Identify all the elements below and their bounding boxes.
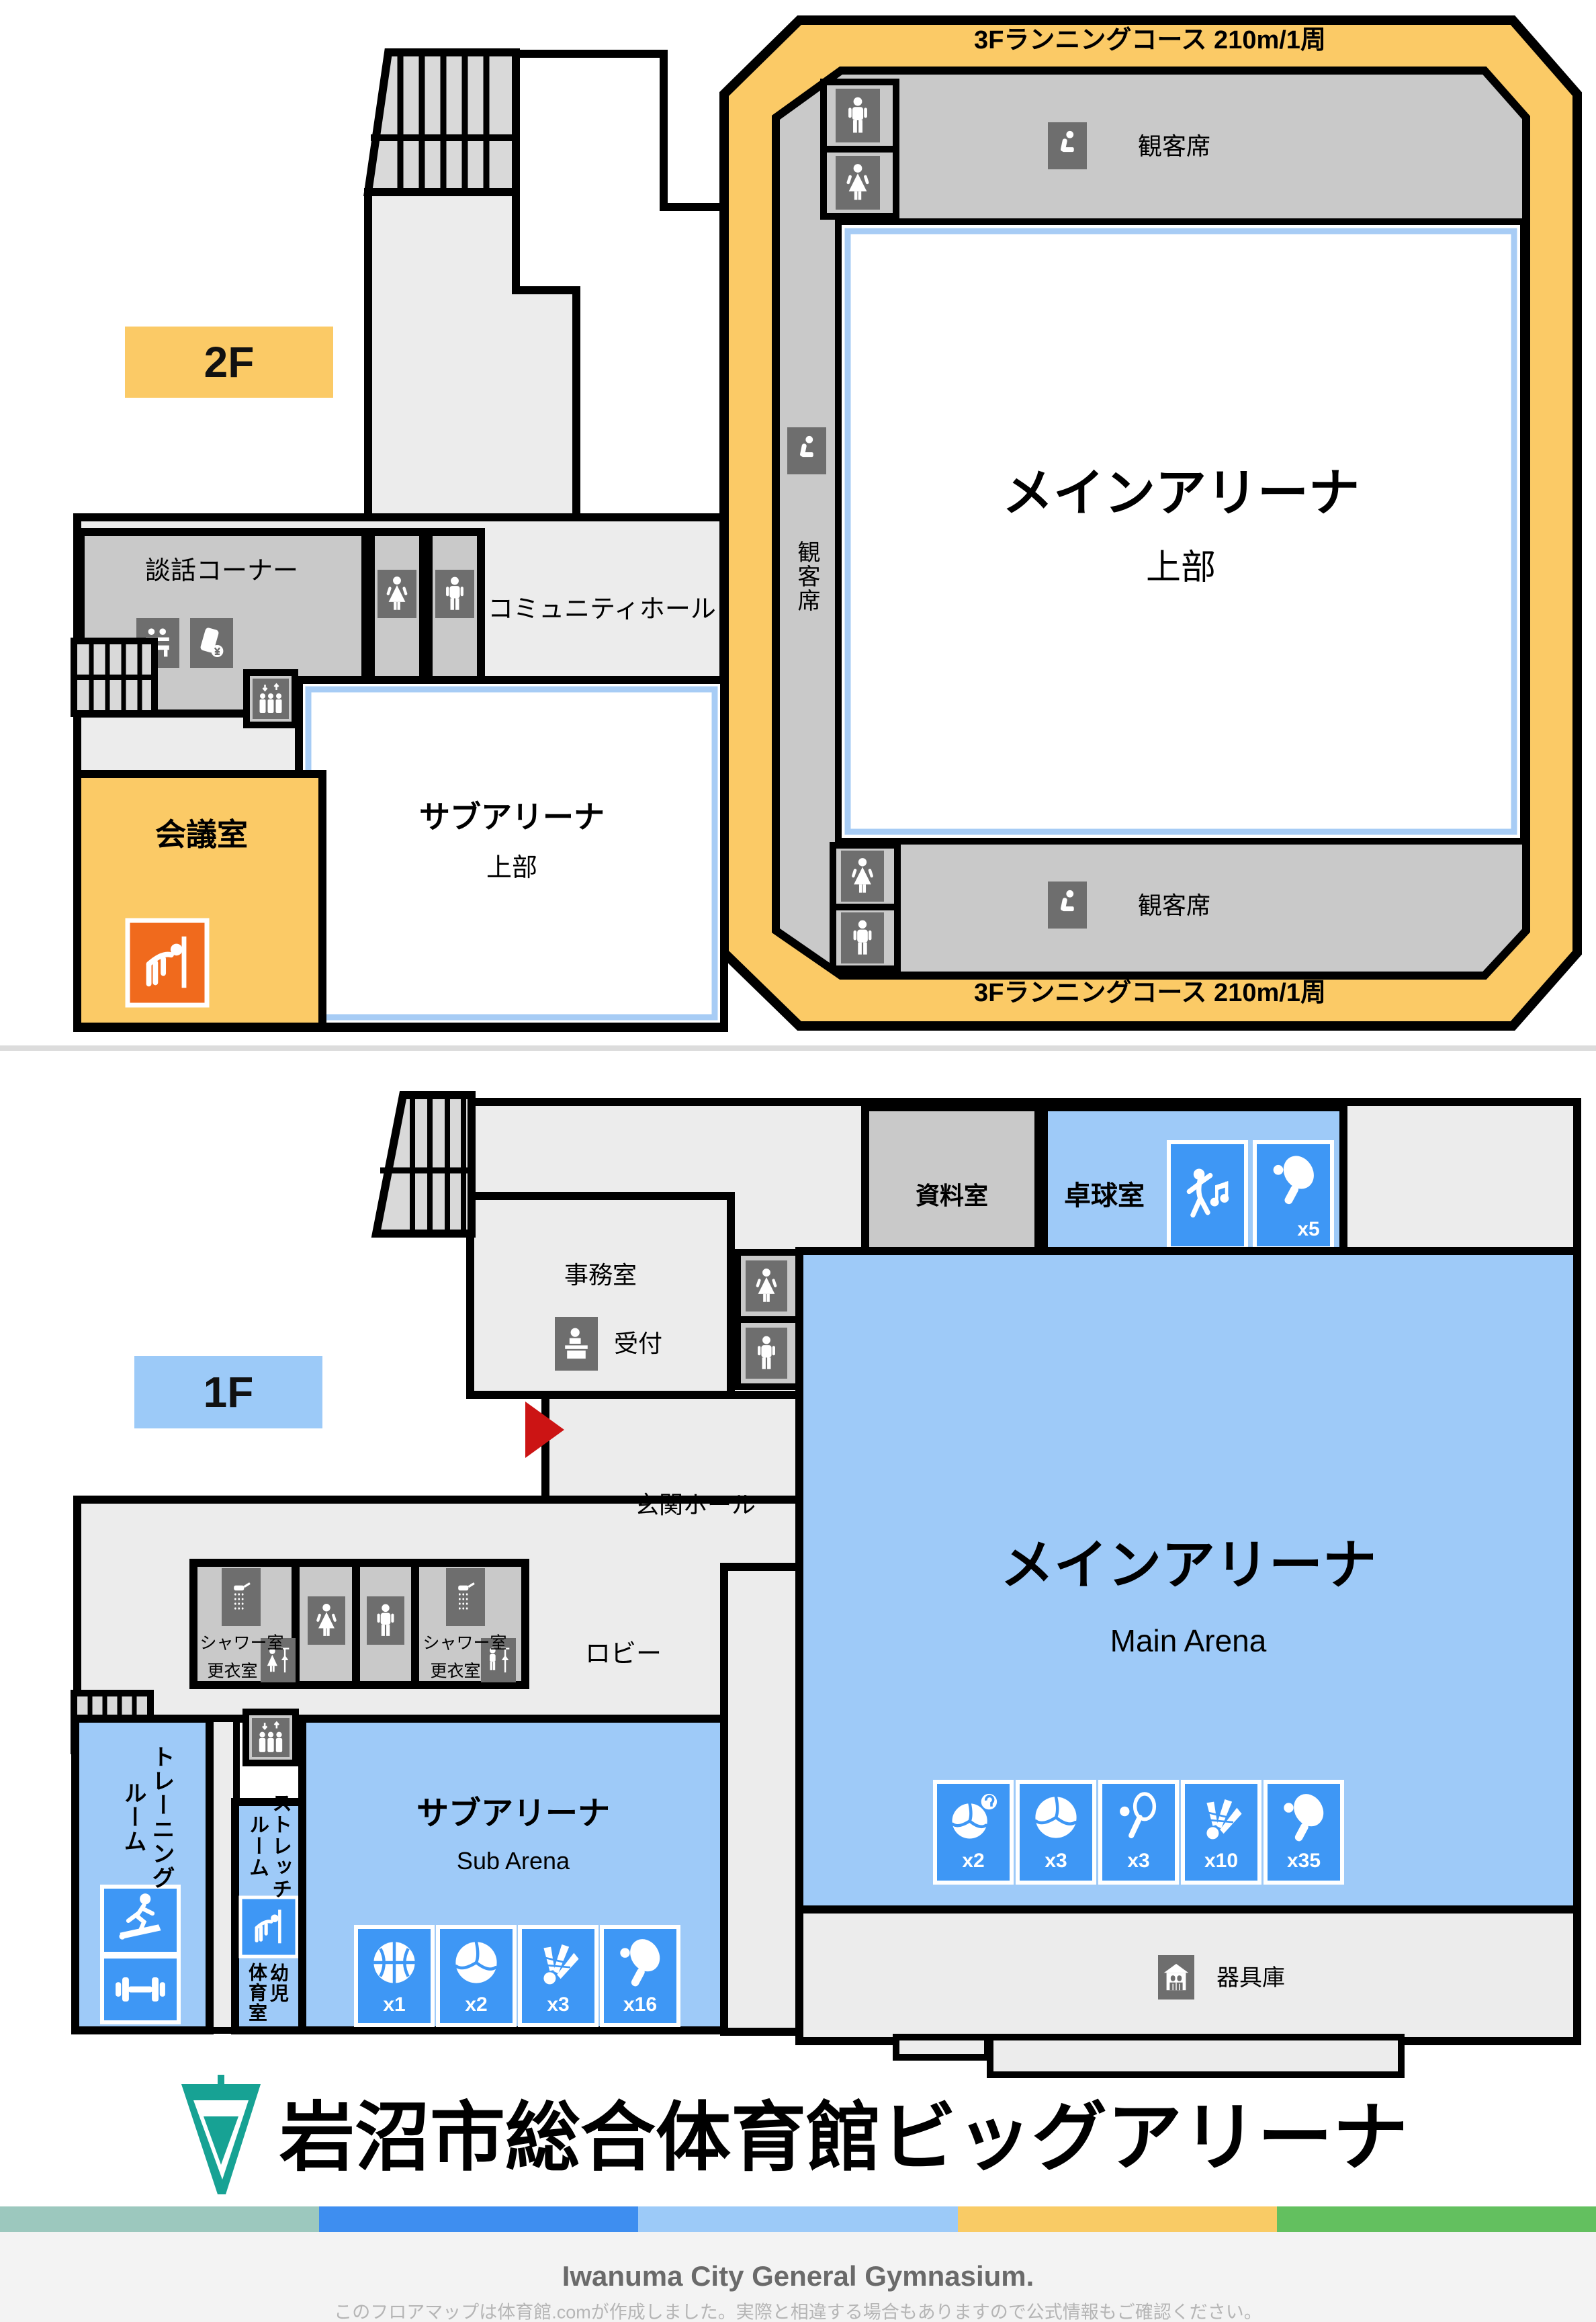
- elevator-icon: [247, 673, 295, 725]
- f2-main-arena-title: メインアリーナ: [1002, 468, 1360, 519]
- table-tennis-icon: [1255, 1142, 1332, 1248]
- sub-count-basketball: x1: [383, 1995, 405, 2015]
- training-room-label-2: ルーム: [122, 1781, 144, 1854]
- f2-staircase: [368, 52, 516, 192]
- shower-room-label-right: シャワー室: [423, 1635, 506, 1652]
- floor-map-page: 2F 1F 3Fランニングコース 210m/1周 3Fランニングコース 210m…: [0, 0, 1596, 2322]
- stripe-lightblue: [638, 2206, 957, 2232]
- stretch-room-label-2: ルーム: [247, 1814, 267, 1879]
- womens-toilet-icon: [308, 1596, 345, 1645]
- floor1-badge: 1F: [134, 1356, 322, 1428]
- mens-toilet-icon: [836, 89, 880, 142]
- f2-outline-step: [516, 54, 724, 207]
- floor2-badge: 2F: [125, 327, 333, 398]
- main-count-tennis: x3: [1127, 1851, 1149, 1871]
- f1-staircase: [376, 1095, 472, 1234]
- spectator-label-bottom: 観客席: [1138, 894, 1210, 918]
- womens-toilet-icon: [836, 156, 880, 210]
- spectator-label-left: 観客席: [795, 540, 818, 613]
- shower-icon: [222, 1568, 261, 1626]
- reception-icon: [555, 1317, 598, 1371]
- entrance-hall-label: 玄関ホール: [635, 1493, 756, 1517]
- f2-sub-arena-subtitle: 上部: [486, 855, 537, 881]
- footer-note: このフロアマップは体育館.comが作成しました。実際と相違する場合もありますので…: [334, 2304, 1262, 2322]
- facility-logo: [181, 2075, 261, 2194]
- tt-room-count: x5: [1297, 1219, 1319, 1240]
- changing-room-label-right: 更衣室: [430, 1664, 480, 1680]
- archive-room-label: 資料室: [916, 1184, 988, 1208]
- mens-toilet-icon: [435, 570, 474, 618]
- stretch-icon: [128, 920, 207, 1005]
- equipment-storage-label: 器具庫: [1216, 1967, 1285, 1989]
- f1-room-office: [470, 1196, 731, 1395]
- main-count-table-tennis: x35: [1287, 1851, 1321, 1871]
- shower-room-label-left: シャワー室: [199, 1635, 283, 1652]
- f2-sub-arena: [299, 680, 724, 1027]
- stripe-teal: [0, 2206, 319, 2232]
- brand-stripe: [0, 2206, 1596, 2232]
- sub-count-badminton: x3: [547, 1995, 569, 2015]
- spectator-label-top: 観客席: [1138, 134, 1210, 159]
- f1-main-arena-title: メインアリーナ: [1000, 1539, 1376, 1592]
- f1-corridor: [724, 1567, 799, 2032]
- dumbbell-icon: [102, 1956, 179, 2022]
- sub-count-volleyball: x2: [465, 1995, 487, 2015]
- infant-gym-label-2: 体育室: [247, 1963, 266, 2023]
- facility-title-en: Iwanuma City General Gymnasium.: [562, 2262, 1034, 2290]
- vending-machine-icon: [190, 618, 233, 668]
- womens-toilet-icon: [378, 570, 416, 618]
- sub-count-table-tennis: x16: [623, 1995, 657, 2015]
- f2-sub-arena-title: サブアリーナ: [419, 802, 605, 832]
- mens-toilet-icon: [841, 912, 884, 963]
- mens-toilet-icon: [367, 1596, 404, 1645]
- reception-label: 受付: [614, 1332, 662, 1356]
- f2-side-stairs: [74, 641, 154, 714]
- equipment-storage-icon: [1158, 1955, 1194, 1999]
- main-count-volleyball: x3: [1045, 1851, 1067, 1871]
- womens-toilet-icon: [841, 851, 884, 902]
- f1-sub-arena-subtitle: Sub Arena: [457, 1849, 570, 1873]
- stripe-yellow: [958, 2206, 1277, 2232]
- chat-corner-label: 談話コーナー: [145, 558, 298, 584]
- f2-corridor: [368, 192, 576, 517]
- spectator-seat-icon: [1048, 122, 1087, 169]
- spectator-seat-icon: [1048, 881, 1087, 929]
- treadmill-icon: [102, 1887, 179, 1954]
- training-room-label-1: トレーニング: [150, 1745, 173, 1890]
- spectator-seat-icon: [787, 427, 826, 474]
- stretch-icon: [240, 1897, 297, 1956]
- womens-toilet-icon: [746, 1260, 787, 1311]
- main-count-badminton: x10: [1204, 1851, 1238, 1871]
- f1-sub-arena-title: サブアリーナ: [416, 1798, 610, 1830]
- shower-icon: [446, 1568, 485, 1626]
- changing-room-label-left: 更衣室: [207, 1664, 257, 1680]
- infant-gym-label-1: 幼児: [269, 1963, 287, 2004]
- stretch-room-label-1: ストレッチ: [269, 1793, 290, 1900]
- running-course-label-top: 3Fランニングコース 210m/1周: [974, 28, 1326, 53]
- office-label: 事務室: [564, 1263, 637, 1287]
- lobby-label: ロビー: [585, 1641, 662, 1667]
- floor-divider: [0, 1045, 1596, 1051]
- floor2-plan: [74, 20, 1577, 1028]
- main-count-soft-volleyball: x2: [962, 1851, 984, 1871]
- facility-title: 岩沼市総合体育館ビッグアリーナ: [279, 2100, 1408, 2176]
- dance-icon: [1169, 1142, 1246, 1248]
- running-course-label-bottom: 3Fランニングコース 210m/1周: [974, 980, 1326, 1006]
- mens-toilet-icon: [746, 1328, 787, 1379]
- f1-main-arena-subtitle: Main Arena: [1110, 1625, 1267, 1656]
- community-hall-label: コミュニティホール: [488, 597, 716, 622]
- elevator-icon: [246, 1712, 296, 1763]
- table-tennis-room-label: 卓球室: [1064, 1182, 1145, 1209]
- stripe-green: [1277, 2206, 1596, 2232]
- stripe-blue: [319, 2206, 638, 2232]
- meeting-room-label: 会議室: [155, 819, 248, 850]
- f2-main-arena-subtitle: 上部: [1146, 550, 1216, 585]
- f2-main-arena: [838, 222, 1523, 841]
